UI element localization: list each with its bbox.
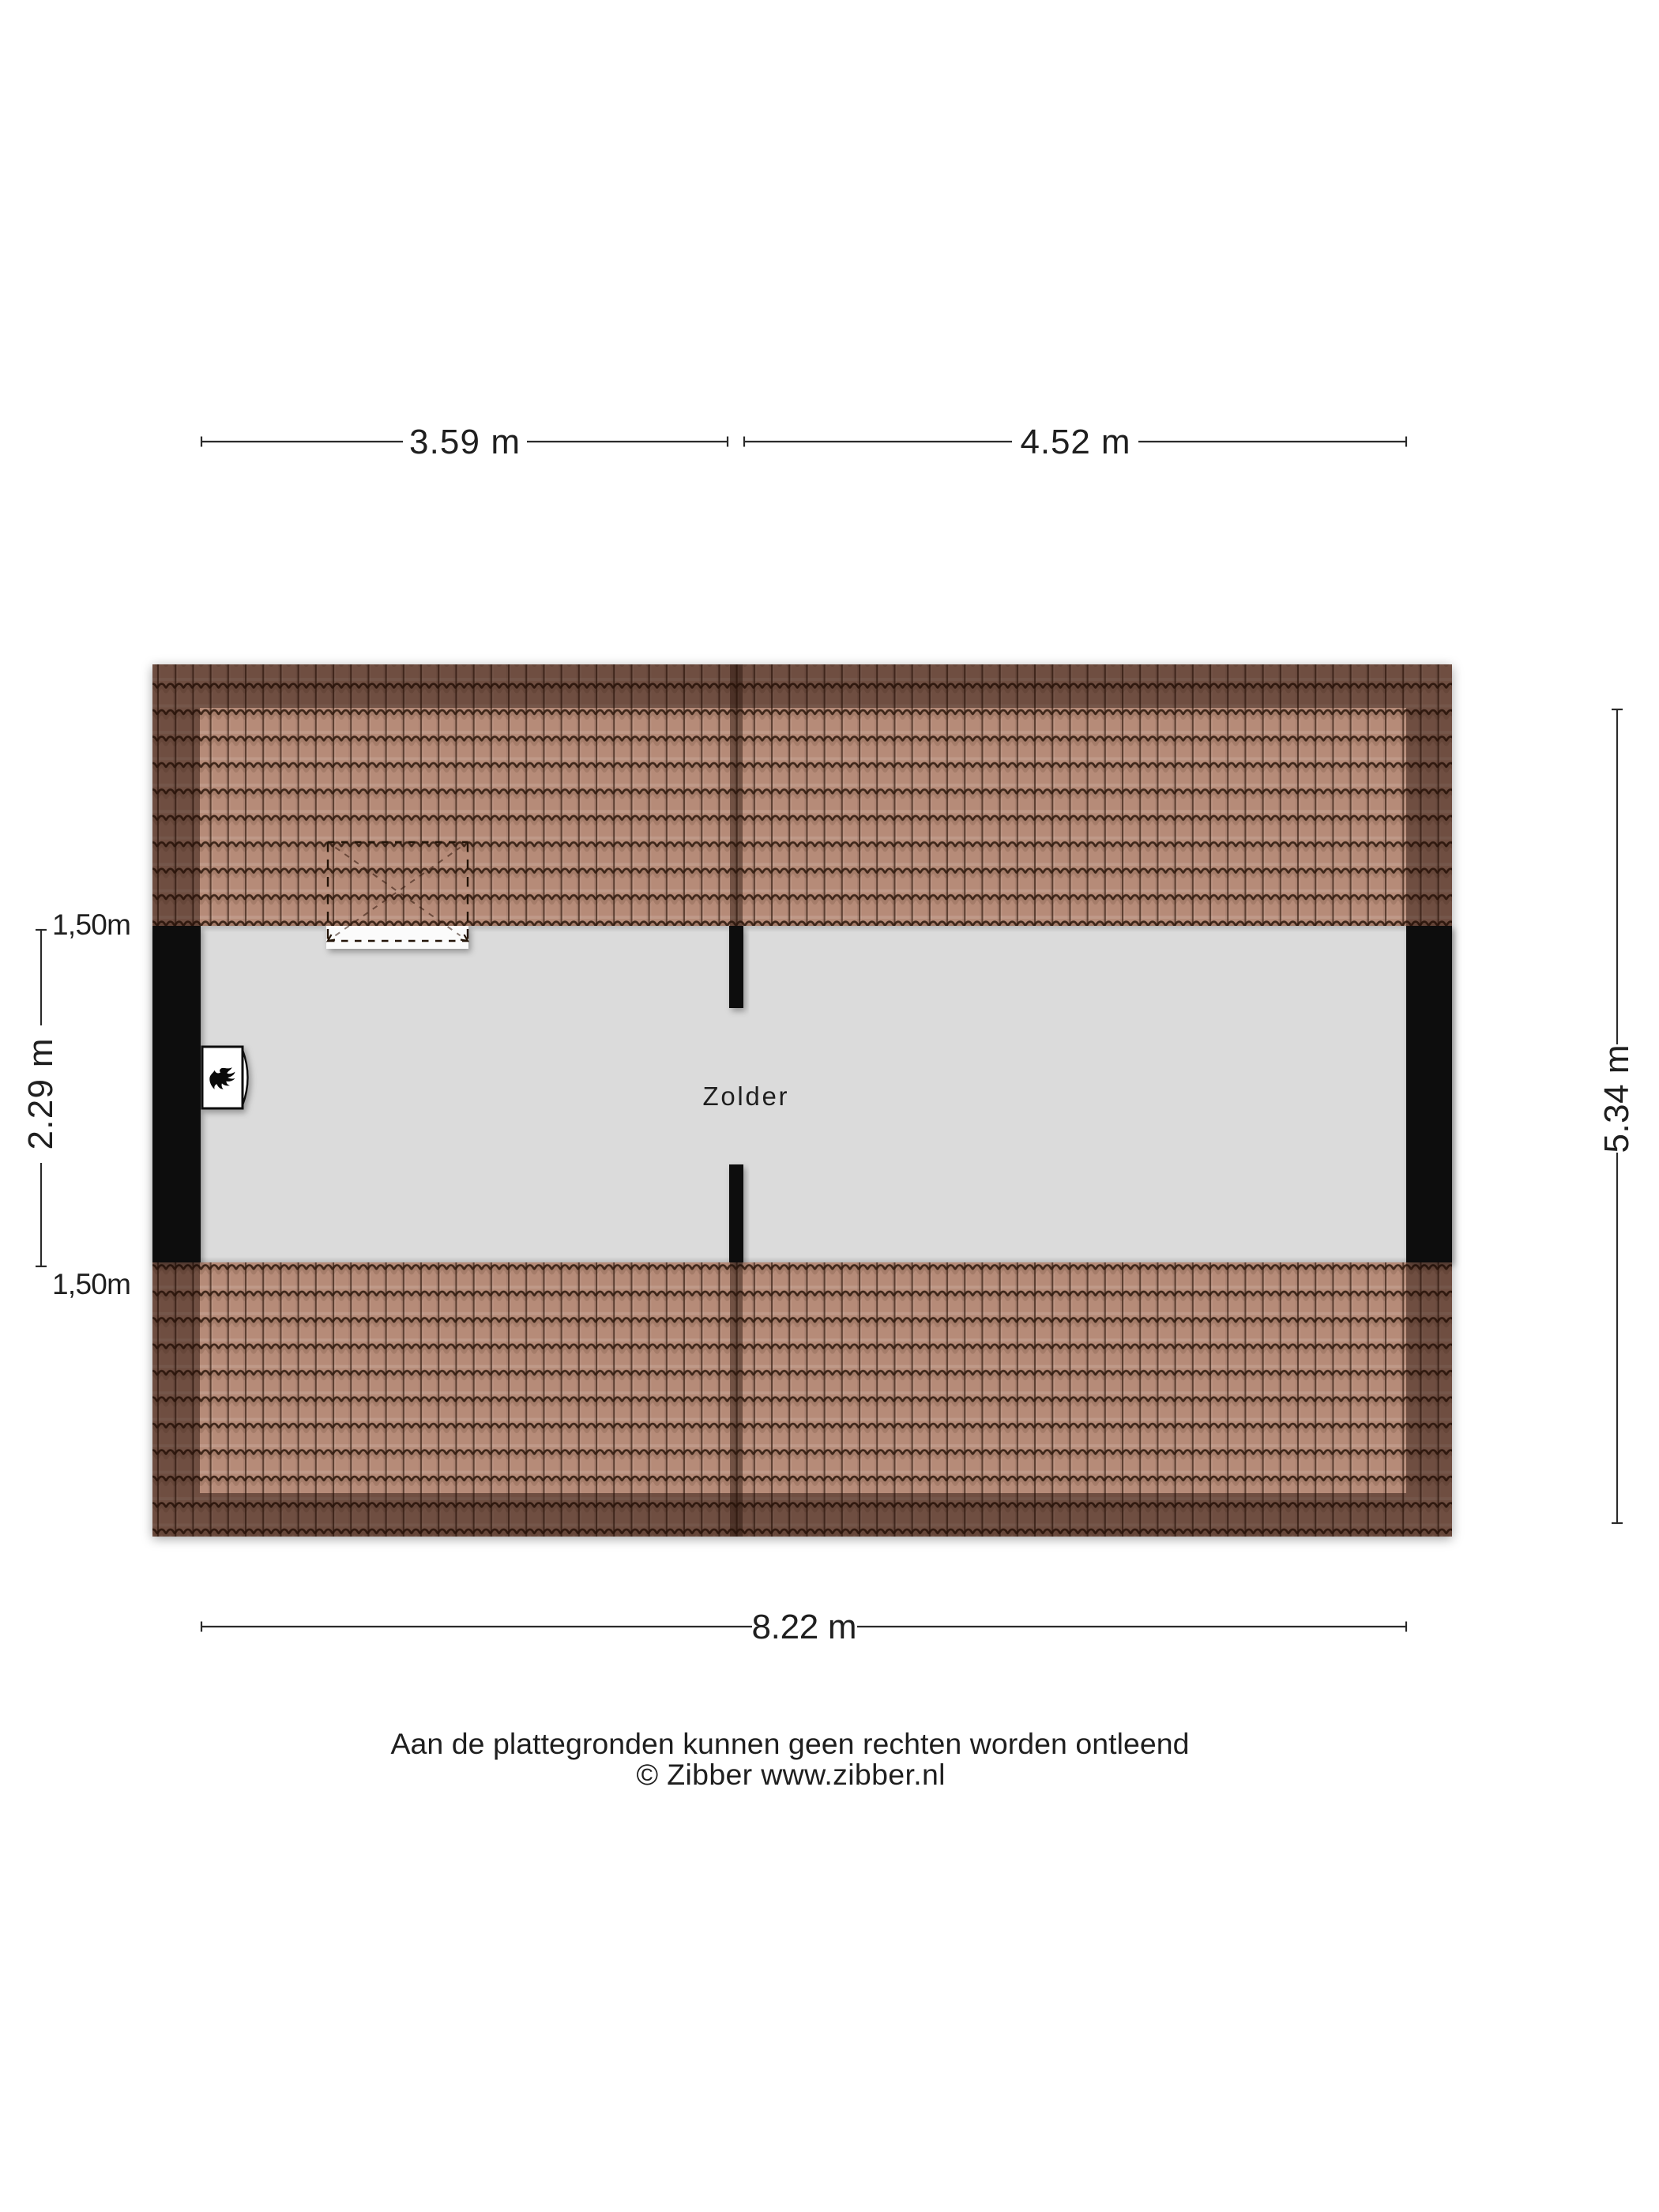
svg-text:5.34 m: 5.34 m [1597,1045,1636,1153]
svg-text:4.52 m: 4.52 m [1021,423,1130,461]
svg-text:Aan de plattegronden kunnen ge: Aan de plattegronden kunnen geen rechten… [391,1727,1190,1760]
svg-text:Zolder: Zolder [703,1082,788,1111]
svg-text:8.22 m: 8.22 m [752,1608,857,1646]
svg-text:3.59 m: 3.59 m [409,423,520,461]
svg-text:1,50m: 1,50m [52,1268,131,1300]
svg-text:2.29 m: 2.29 m [21,1039,60,1150]
svg-text:1,50m: 1,50m [52,908,131,941]
svg-text:© Zibber www.zibber.nl: © Zibber www.zibber.nl [637,1758,946,1791]
